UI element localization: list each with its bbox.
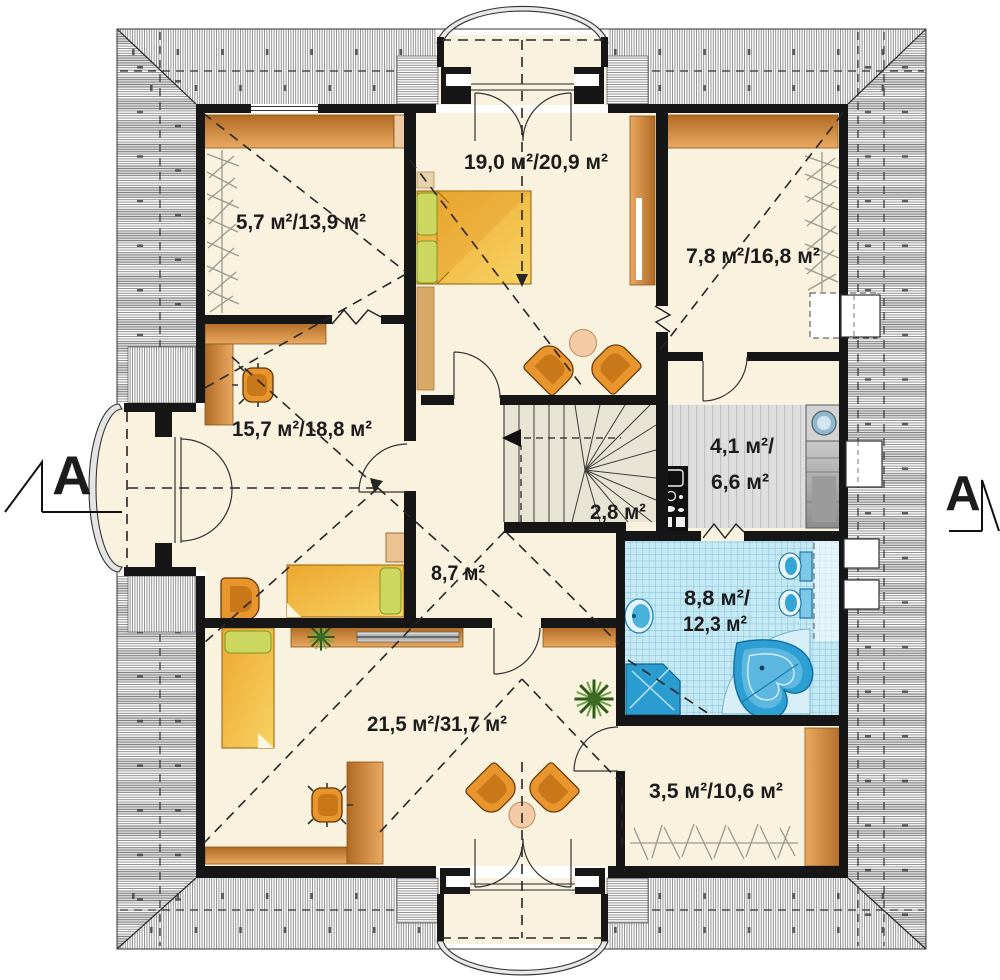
svg-text:15,7 м²/18,8 м²: 15,7 м²/18,8 м²: [232, 417, 372, 441]
svg-text:6,6 м²: 6,6 м²: [711, 470, 769, 494]
svg-text:7,8 м²/16,8 м²: 7,8 м²/16,8 м²: [686, 244, 820, 268]
svg-text:21,5 м²/31,7 м²: 21,5 м²/31,7 м²: [367, 712, 507, 736]
svg-text:4,1 м²/: 4,1 м²/: [710, 434, 774, 458]
svg-text:A: A: [52, 444, 92, 506]
svg-text:3,5 м²/10,6 м²: 3,5 м²/10,6 м²: [649, 779, 783, 803]
svg-text:19,0 м²/20,9 м²: 19,0 м²/20,9 м²: [464, 150, 608, 174]
svg-text:5,7 м²/13,9 м²: 5,7 м²/13,9 м²: [236, 210, 366, 234]
svg-text:12,3 м²: 12,3 м²: [683, 612, 747, 636]
svg-text:8,7 м²: 8,7 м²: [431, 561, 485, 585]
svg-text:2,8 м²: 2,8 м²: [590, 500, 646, 524]
svg-text:8,8 м²/: 8,8 м²/: [684, 586, 750, 610]
svg-text:A: A: [945, 467, 980, 521]
